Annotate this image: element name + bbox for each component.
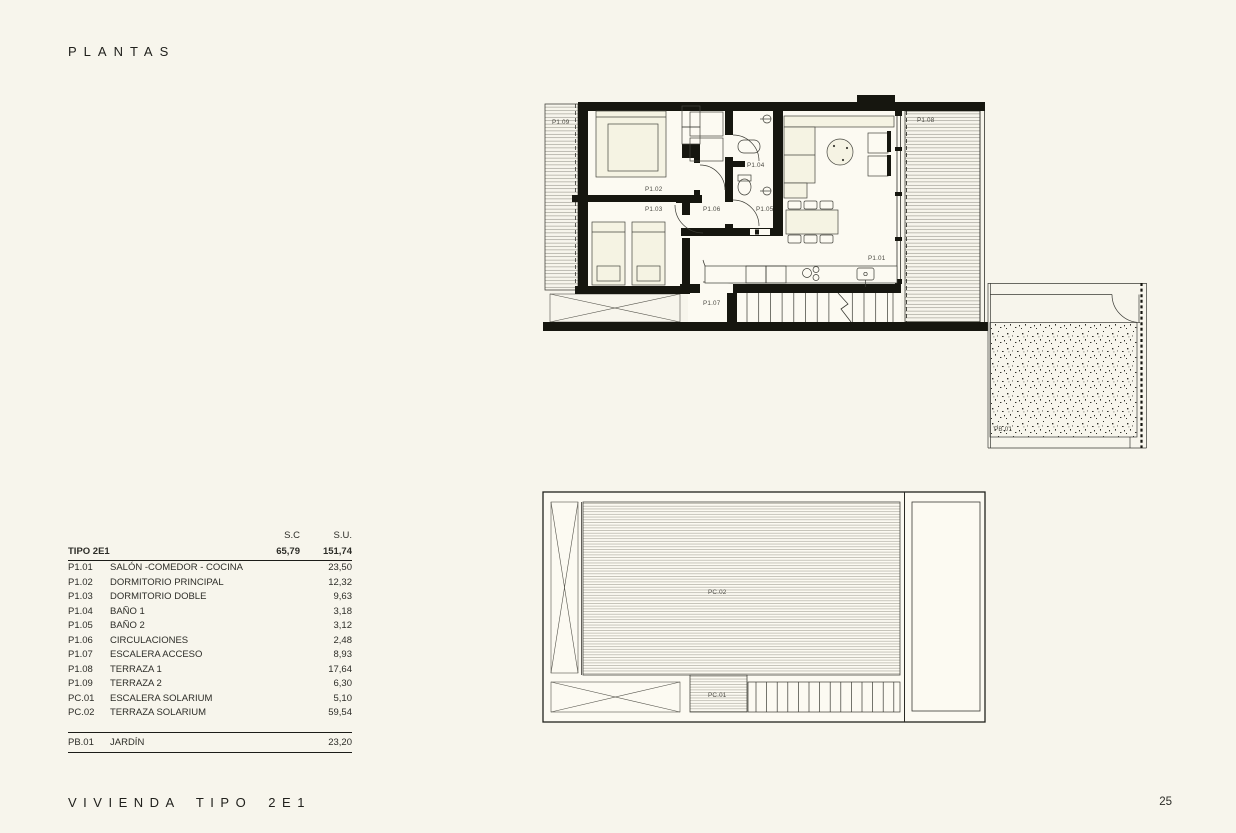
- row-code: P1.09: [68, 678, 110, 689]
- row-su: 17,64: [300, 664, 352, 675]
- vanity-sink: [755, 230, 759, 235]
- row-name: BAÑO 1: [110, 606, 252, 617]
- solarium-plan: PC.02 PC.01: [543, 492, 985, 722]
- row-name: TERRAZA 2: [110, 678, 252, 689]
- row-su: 2,48: [300, 635, 352, 646]
- row-code: P1.04: [68, 606, 110, 617]
- total-code: TIPO 2E1: [68, 546, 178, 557]
- table-row: P1.09 TERRAZA 2 6,30: [68, 677, 352, 692]
- row-code: PC.01: [68, 693, 110, 704]
- row-name: DORMITORIO DOBLE: [110, 591, 252, 602]
- table-total-row: TIPO 2E1 65,79 151,74: [68, 543, 352, 561]
- table-row: P1.03 DORMITORIO DOBLE 9,63: [68, 590, 352, 605]
- row-code: PC.02: [68, 707, 110, 718]
- row-su: 6,30: [300, 678, 352, 689]
- row-su: 3,18: [300, 606, 352, 617]
- row-name: JARDÍN: [110, 737, 252, 748]
- room-label-p104: P1.04: [747, 162, 765, 169]
- row-code: P1.07: [68, 649, 110, 660]
- table-header-row: S.C S.U.: [68, 528, 352, 543]
- table-row: P1.04 BAÑO 1 3,18: [68, 604, 352, 619]
- table-row: P1.07 ESCALERA ACCESO 8,93: [68, 648, 352, 663]
- col-header-su: S.U.: [300, 530, 352, 541]
- table-row: P1.08 TERRAZA 1 17,64: [68, 662, 352, 677]
- table-row: PC.02 TERRAZA SOLARIUM 59,54: [68, 706, 352, 721]
- row-su: 3,12: [300, 620, 352, 631]
- page-title: PLANTAS: [68, 44, 175, 59]
- row-name: CIRCULACIONES: [110, 635, 252, 646]
- row-code: P1.02: [68, 577, 110, 588]
- room-label-p108: P1.08: [917, 117, 935, 124]
- total-sc: 65,79: [252, 546, 300, 557]
- table-row: P1.05 BAÑO 2 3,12: [68, 619, 352, 634]
- document-footer-title: VIVIENDA TIPO 2E1: [68, 795, 311, 810]
- solarium-terrace-deck: [583, 502, 900, 675]
- row-code: P1.06: [68, 635, 110, 646]
- room-label-pc02: PC.02: [708, 589, 727, 596]
- col-header-sc: S.C: [252, 530, 300, 541]
- row-su: 23,20: [300, 737, 352, 748]
- room-label-p107: P1.07: [703, 300, 721, 307]
- table-row: P1.06 CIRCULACIONES 2,48: [68, 633, 352, 648]
- total-su: 151,74: [300, 546, 352, 557]
- row-su: 9,63: [300, 591, 352, 602]
- row-su: 5,10: [300, 693, 352, 704]
- room-label-pb01: PB.01: [994, 426, 1012, 433]
- room-label-p102: P1.02: [645, 186, 663, 193]
- row-name: TERRAZA SOLARIUM: [110, 707, 252, 718]
- area-table: S.C S.U. TIPO 2E1 65,79 151,74 P1.01 SAL…: [68, 528, 352, 753]
- row-code: PB.01: [68, 737, 110, 748]
- row-name: BAÑO 2: [110, 620, 252, 631]
- garden-area: [988, 283, 1147, 448]
- room-label-p101: P1.01: [868, 255, 886, 262]
- vanity-recess: [750, 229, 770, 235]
- terrace-1-area: [905, 104, 985, 322]
- upper-floor-plan: P1.09 P1.02 P1.03 P1.06 P1.05 P1.04 P1.0…: [543, 95, 1147, 448]
- row-su: 59,54: [300, 707, 352, 718]
- room-label-p103: P1.03: [645, 206, 663, 213]
- table-garden-row: PB.01 JARDÍN 23,20: [68, 732, 352, 753]
- table-row: P1.01 SALÓN -COMEDOR - COCINA 23,50: [68, 561, 352, 576]
- floor-plans-drawing: P1.09 P1.02 P1.03 P1.06 P1.05 P1.04 P1.0…: [535, 88, 1160, 733]
- row-name: DORMITORIO PRINCIPAL: [110, 577, 252, 588]
- room-label-pc01: PC.01: [708, 692, 727, 699]
- brochure-page: PLANTAS: [0, 0, 1236, 833]
- row-su: 23,50: [300, 562, 352, 573]
- room-label-p105: P1.05: [756, 206, 774, 213]
- room-label-p109: P1.09: [552, 119, 570, 126]
- page-number: 25: [1138, 796, 1172, 808]
- row-name: ESCALERA SOLARIUM: [110, 693, 252, 704]
- storage-box: [550, 294, 680, 322]
- row-code: P1.01: [68, 562, 110, 573]
- row-su: 12,32: [300, 577, 352, 588]
- table-row: P1.02 DORMITORIO PRINCIPAL 12,32: [68, 575, 352, 590]
- row-name: SALÓN -COMEDOR - COCINA: [110, 562, 252, 573]
- row-su: 8,93: [300, 649, 352, 660]
- table-row: PC.01 ESCALERA SOLARIUM 5,10: [68, 691, 352, 706]
- row-code: P1.08: [68, 664, 110, 675]
- row-name: TERRAZA 1: [110, 664, 252, 675]
- row-code: P1.05: [68, 620, 110, 631]
- row-name: ESCALERA ACCESO: [110, 649, 252, 660]
- row-code: P1.03: [68, 591, 110, 602]
- room-label-p106: P1.06: [703, 206, 721, 213]
- table-spacer: [68, 720, 352, 732]
